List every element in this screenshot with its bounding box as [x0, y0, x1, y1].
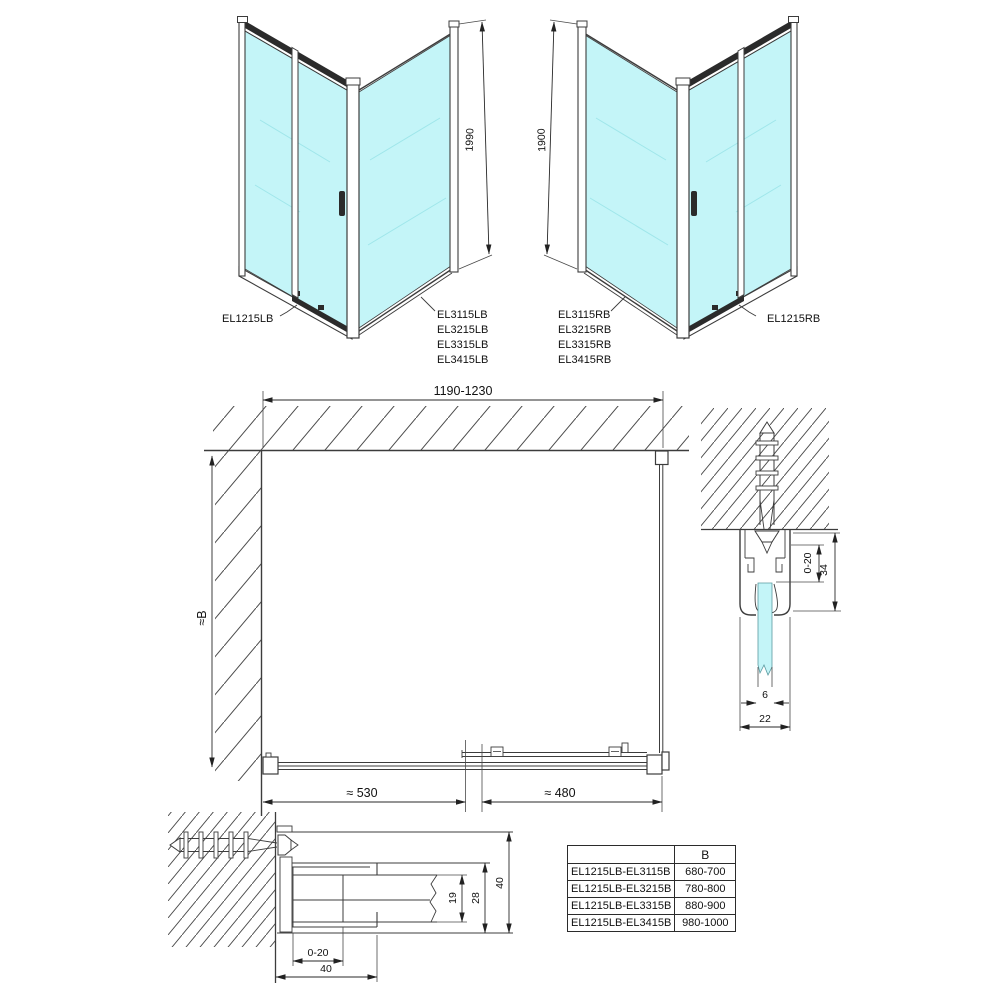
left-end-stile: [450, 26, 458, 272]
table-header-row: B: [568, 846, 736, 864]
depth-dim: 40: [494, 877, 506, 889]
table-header-empty: [568, 846, 675, 864]
size-table: B EL1215LB-EL3115B 680-700 EL1215LB-EL32…: [567, 845, 736, 932]
right-height-dim: 1900: [536, 128, 549, 152]
wall-anchor-icon: [755, 422, 779, 553]
table-row: EL1215LB-EL3415B 980-1000: [568, 915, 736, 932]
left-panel-label-4: EL3415LB: [437, 354, 488, 366]
right-side-glass: [585, 35, 677, 328]
pocket-dim: 19: [447, 892, 459, 904]
left-door-divider: [292, 48, 298, 299]
right-panel-label-1: EL3115RB: [558, 309, 610, 321]
technical-drawing-sheet: 1990 EL1215LB EL3115LB EL3215LB EL3315LB…: [0, 0, 1000, 1000]
drawing-canvas: 1990 EL1215LB EL3115LB EL3215LB EL3315LB…: [0, 0, 1000, 1000]
combo-cell: EL1215LB-EL3215B: [568, 881, 675, 898]
left-panel-label-1: EL3115LB: [437, 309, 488, 321]
b-cell: 980-1000: [675, 915, 736, 932]
combo-cell: EL1215LB-EL3315B: [568, 898, 675, 915]
right-enclosure-view: 1900 EL1215RB EL3115RB EL3215RB EL3315RB…: [536, 17, 821, 367]
b-cell: 780-800: [675, 881, 736, 898]
wall-profile-section: 6 22 0-20 34: [701, 408, 841, 731]
sliding-door-plan: [263, 743, 669, 774]
right-panel-label-4: EL3415RB: [558, 354, 611, 366]
left-handle: [339, 191, 345, 216]
profile-height-dim: 34: [818, 564, 830, 576]
glass-thickness-dim: 6: [762, 689, 768, 701]
left-side-glass: [359, 35, 451, 328]
b-cell: 680-700: [675, 864, 736, 881]
right-corner-post: [677, 82, 689, 338]
right-end-stile: [578, 26, 586, 272]
section-glass: [758, 583, 772, 675]
wall-adjust-dim: 0-20: [802, 552, 814, 573]
door-profile-section: 19 28 40 0-20 40: [168, 812, 513, 983]
b-cell: 880-900: [675, 898, 736, 915]
plan-view: 1190-1230 ≈B: [195, 384, 689, 816]
right-panel-label-3: EL3315RB: [558, 339, 611, 351]
table-row: EL1215LB-EL3315B 880-900: [568, 898, 736, 915]
left-wall-stile: [239, 20, 245, 276]
left-height-dim: 1990: [464, 128, 477, 152]
plan-door-dim: ≈ 480: [544, 786, 575, 800]
left-wall-hatch: [215, 451, 261, 781]
right-door-divider: [738, 48, 744, 299]
plan-fixed-dim: ≈ 530: [346, 786, 377, 800]
left-panel-label-2: EL3215LB: [437, 324, 488, 336]
left-corner-post: [347, 82, 359, 338]
profile-width-dim: 22: [759, 713, 771, 725]
inner-dim: 28: [470, 892, 482, 904]
right-panel-label-2: EL3215RB: [558, 324, 611, 336]
right-handle: [691, 191, 697, 216]
right-door-label: EL1215RB: [767, 313, 820, 325]
table-row: EL1215LB-EL3115B 680-700: [568, 864, 736, 881]
left-door-label: EL1215LB: [222, 313, 273, 325]
top-wall-hatch: [213, 406, 689, 450]
combo-cell: EL1215LB-EL3415B: [568, 915, 675, 932]
bottom-width-dim: 40: [320, 963, 332, 975]
combo-cell: EL1215LB-EL3115B: [568, 864, 675, 881]
floor-adjust-dim: 0-20: [307, 947, 328, 959]
table-row: EL1215LB-EL3215B 780-800: [568, 881, 736, 898]
left-enclosure-view: 1990 EL1215LB EL3115LB EL3215LB EL3315LB…: [222, 17, 492, 367]
left-panel-label-3: EL3315LB: [437, 339, 488, 351]
plan-depth-dim: ≈B: [195, 610, 209, 625]
plan-width-dim: 1190-1230: [434, 384, 493, 398]
right-wall-stile: [791, 20, 797, 276]
wall-bracket: [656, 451, 669, 465]
table-header-b: B: [675, 846, 736, 864]
